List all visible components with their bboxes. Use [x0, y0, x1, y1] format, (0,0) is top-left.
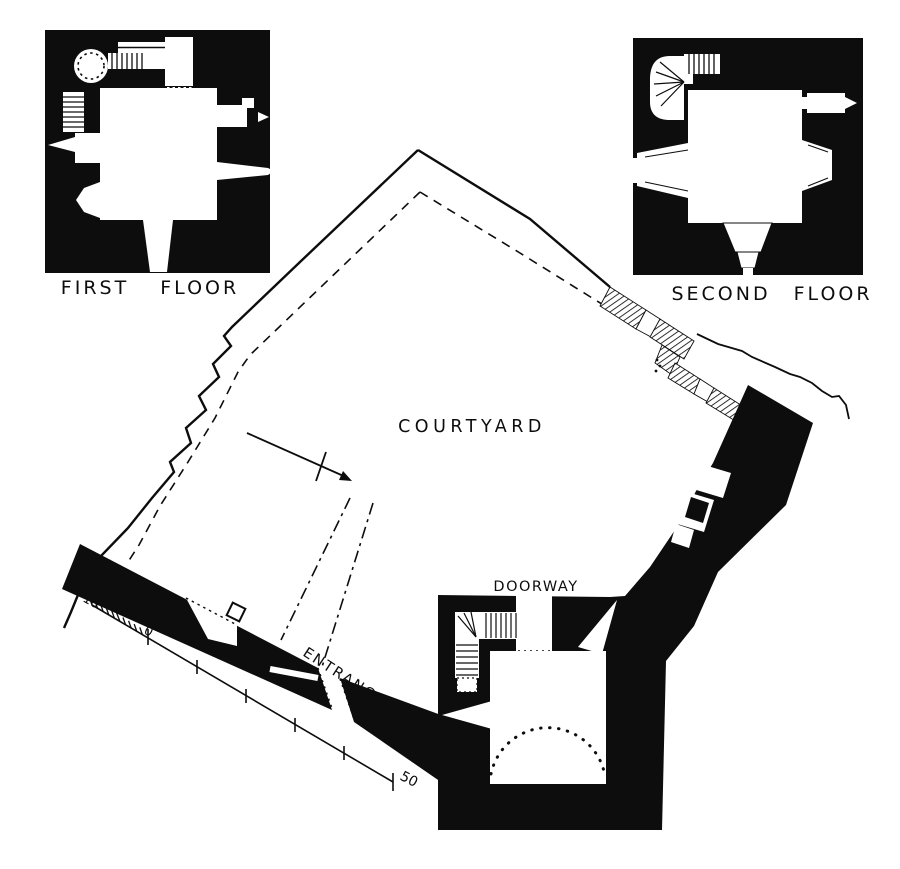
scale-zero-label: 0	[141, 623, 155, 640]
curtain-post-socket	[227, 603, 246, 622]
plan-drawing: 10 0 50 COURTYARD DOORWAY ENTRANCE	[0, 0, 900, 869]
courtyard-label: COURTYARD	[398, 417, 546, 437]
northeast-hatched-wall	[600, 287, 744, 422]
tower-and-east-range	[438, 385, 813, 830]
first-floor-inset	[45, 30, 274, 273]
ff-stair	[108, 53, 165, 69]
sf-hall	[688, 90, 802, 223]
scale-right-label: 50	[397, 768, 420, 790]
ff-west-stair	[63, 92, 84, 132]
second-floor-label: SECOND FLOOR	[671, 283, 872, 305]
south-curtain-wall	[62, 544, 441, 782]
courtyard-dashed-building-lines	[281, 498, 373, 667]
north-arrow	[247, 433, 352, 481]
ff-hall	[100, 88, 217, 220]
doorway-label: DOORWAY	[493, 579, 578, 595]
castle-plan-figure: 10 0 50 COURTYARD DOORWAY ENTRANCE	[0, 0, 900, 869]
second-floor-inset	[633, 38, 863, 276]
tower-room	[490, 651, 606, 784]
first-floor-label: FIRST FLOOR	[61, 277, 239, 299]
